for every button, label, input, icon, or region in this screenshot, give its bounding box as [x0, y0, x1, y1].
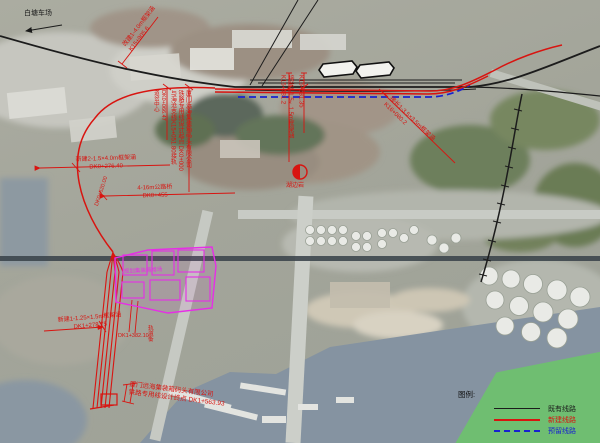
annotation-start-point: 厦门远海集装箱码头有限公司 铁路专用线设计起点 DK0+000 与海沧支线K15… — [168, 90, 191, 194]
railway-plan-map: 白塘车场 改建1-4.0m框架涵 K15+905.6 DK0+066.47 道岔… — [0, 0, 600, 443]
platform-2 — [356, 62, 394, 78]
legend-line-existing — [494, 408, 540, 409]
legend-row-existing: 既有线路 — [494, 403, 576, 414]
legend-row-new: 新建线路 — [494, 414, 576, 425]
annotation-culvert-g: K15+631.35 — [296, 75, 304, 137]
legend-label-existing: 既有线路 — [548, 404, 576, 414]
station-platforms — [319, 61, 394, 78]
legend-line-new — [494, 419, 540, 421]
legend-label-reserved: 预留线路 — [548, 426, 576, 436]
annotation-switch-c: DK0+066.47 道岔中心 — [152, 90, 166, 148]
legend: 图例: 既有线路 新建线路 预留线路 — [458, 389, 576, 436]
station-label: 白塘车场 — [24, 10, 52, 19]
legend-row-reserved: 预留线路 — [494, 425, 576, 436]
legend-title: 图例: — [458, 389, 576, 400]
planned-yard — [115, 247, 216, 313]
legend-line-reserved — [494, 430, 540, 432]
annotation-culvert-f: 接长1-1.5×1.5m框架涵 K15+481.2 — [278, 75, 293, 169]
dark-corridor-band — [0, 256, 600, 261]
station-pointer-arrow — [26, 25, 62, 31]
legend-label-new: 新建线路 — [548, 415, 576, 425]
annotation-scale-mileage: DK1+382.10 — [118, 333, 149, 340]
annotation-control-point: 湖边岩 — [286, 183, 304, 191]
platform-1 — [319, 61, 357, 77]
annotation-scale-name: 轨道衡 — [146, 325, 153, 351]
